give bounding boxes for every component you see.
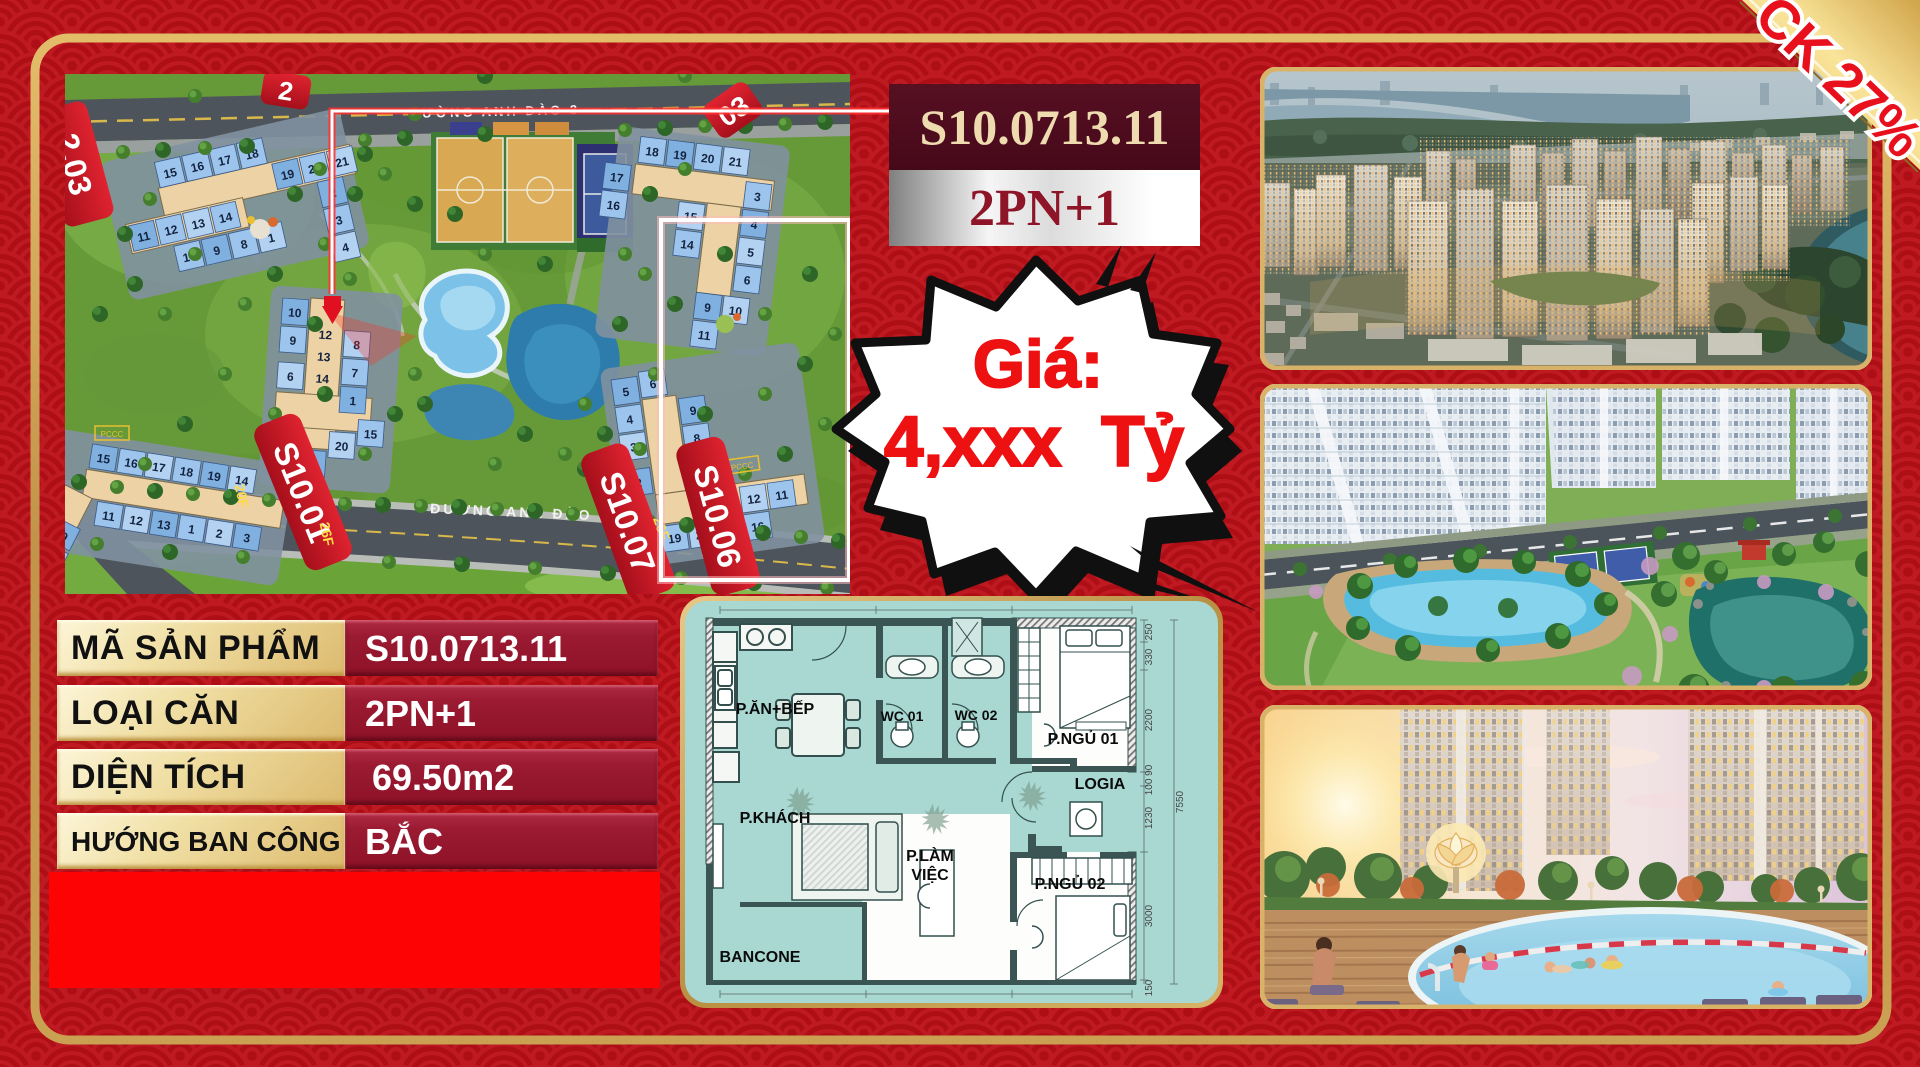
svg-text:7550: 7550	[1175, 790, 1186, 813]
svg-text:100 90: 100 90	[1144, 764, 1155, 795]
svg-text:P.ĂN+BẾP: P.ĂN+BẾP	[736, 699, 815, 718]
svg-text:250: 250	[1144, 623, 1155, 640]
svg-text:3000: 3000	[1144, 904, 1155, 927]
svg-text:1230: 1230	[1144, 806, 1155, 829]
svg-text:BANCONE: BANCONE	[720, 949, 801, 966]
svg-text:Giá:: Giá:	[973, 327, 1103, 402]
svg-text:P.NGỦ 01: P.NGỦ 01	[1048, 729, 1119, 748]
svg-text:330: 330	[1144, 648, 1155, 665]
svg-text:LOGIA: LOGIA	[1075, 776, 1126, 793]
svg-text:WC 02: WC 02	[955, 707, 998, 723]
svg-text:P.NGỦ 02: P.NGỦ 02	[1035, 874, 1106, 893]
svg-text:P.KHÁCH: P.KHÁCH	[740, 808, 811, 827]
svg-text:P.LÀM: P.LÀM	[906, 846, 954, 865]
svg-text:VIỆC: VIỆC	[911, 865, 949, 884]
svg-text:WC 01: WC 01	[881, 708, 924, 724]
svg-text:2200: 2200	[1144, 708, 1155, 731]
svg-text:4,xxx Tỷ: 4,xxx Tỷ	[884, 403, 1184, 482]
svg-text:150: 150	[1144, 979, 1155, 996]
